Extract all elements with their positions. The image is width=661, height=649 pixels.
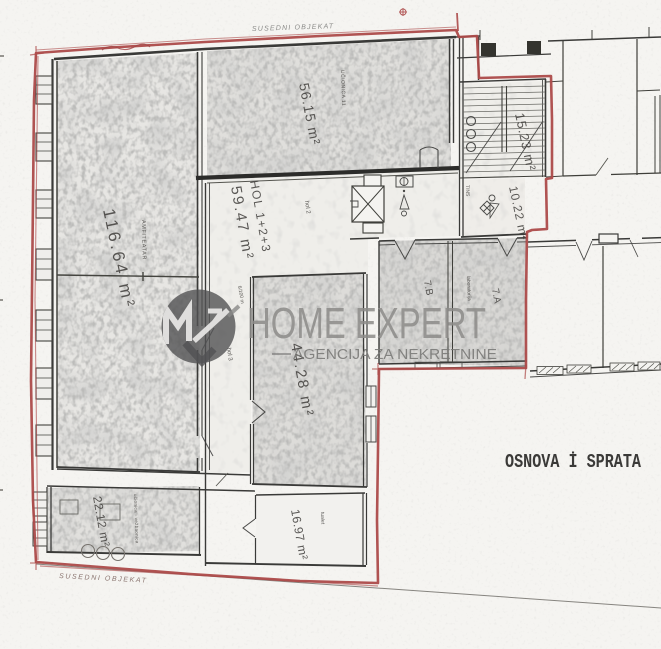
svg-text:HOME EXPERT: HOME EXPERT (247, 299, 486, 348)
svg-text:AGENCIJA ZA NEKRETNINE: AGENCIJA ZA NEKRETNINE (293, 346, 497, 363)
svg-text:UČIONICA 11: UČIONICA 11 (339, 70, 347, 106)
svg-text:OSNOVA İ SPRATA: OSNOVA İ SPRATA (505, 451, 641, 473)
svg-text:tualet: tualet (319, 512, 325, 525)
svg-text:TINS: TINS (464, 185, 470, 197)
svg-text:laboratorija: laboratorija (465, 276, 472, 301)
svg-text:AMFITEATAR: AMFITEATAR (140, 220, 147, 260)
